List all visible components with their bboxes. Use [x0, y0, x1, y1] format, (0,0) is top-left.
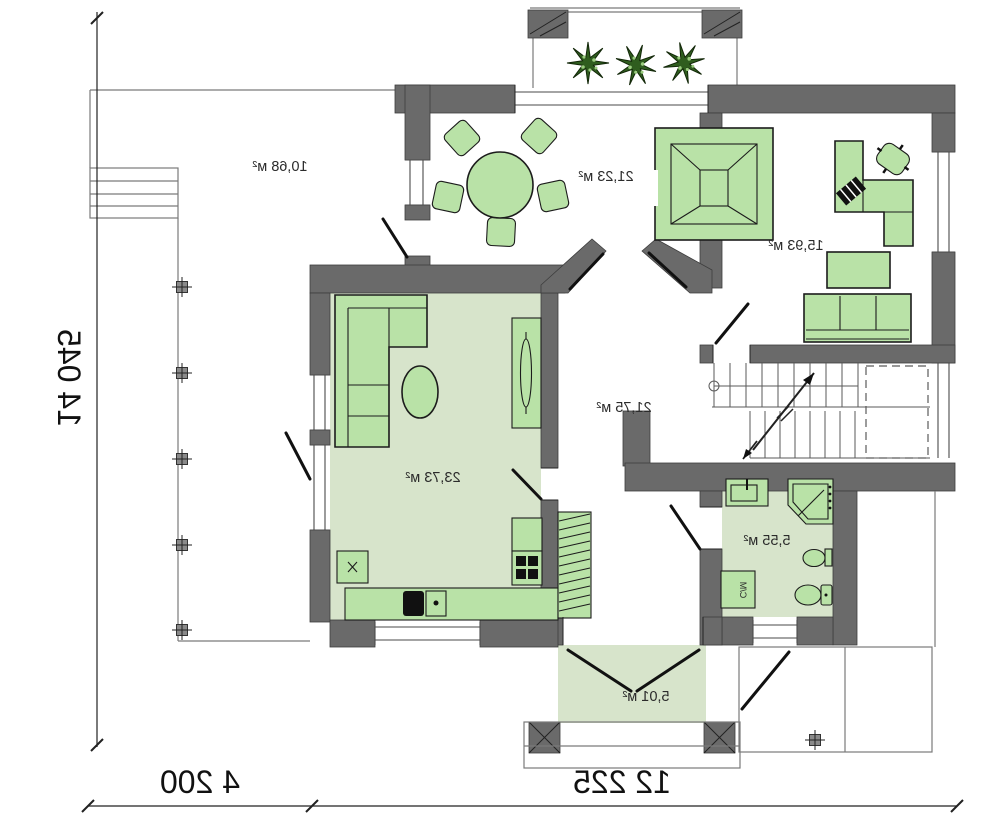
kitchen-counter-icon	[345, 588, 558, 620]
balcony-pier	[528, 10, 568, 38]
room-label-terrace: 10,68 м²	[252, 159, 307, 175]
sofa-icon	[804, 294, 911, 342]
column-icon	[805, 730, 825, 750]
window-stairs-east	[938, 363, 949, 458]
dining-set	[431, 116, 569, 246]
room-label-dining: 21,23 м²	[578, 169, 633, 185]
chair-icon	[536, 179, 569, 212]
terrace-steps	[90, 168, 178, 218]
chair-icon	[486, 217, 515, 246]
porch-column	[529, 722, 560, 753]
room-label-bathroom: 5,55 м²	[743, 533, 790, 549]
column-icon	[172, 277, 192, 297]
plant-icon	[659, 38, 709, 88]
toilet-icon	[795, 585, 832, 605]
stove-icon	[512, 551, 542, 585]
oval-coffee-table-icon	[402, 366, 438, 418]
coffee-table-icon	[827, 252, 890, 288]
plant-icon	[567, 42, 609, 84]
column-icon	[172, 535, 192, 555]
window-living-west-1	[310, 375, 330, 430]
kitchen-side-unit	[337, 551, 368, 583]
chair-icon	[442, 118, 482, 158]
room-label-living: 23,73 м²	[405, 470, 460, 486]
chair-icon	[519, 116, 559, 156]
column-icon	[172, 449, 192, 469]
column-icon	[172, 363, 192, 383]
dimension-line-left: 14 045	[51, 12, 103, 751]
room-label-entrance: 5,01 м²	[622, 689, 669, 705]
bidet-icon	[803, 549, 832, 567]
window-dining-west	[405, 160, 430, 205]
wardrobe-icon	[558, 512, 591, 618]
plant-icon	[610, 39, 663, 92]
window-living-west-2	[310, 445, 330, 530]
door-icon	[671, 506, 700, 549]
door-icon	[286, 433, 310, 479]
entrance-porch	[524, 722, 740, 768]
washing-machine-icon: С/М	[721, 571, 755, 608]
door-icon	[383, 219, 407, 257]
dimension-left-value: 14 045	[51, 329, 87, 427]
dimension-bottom-left-value: 4 200	[160, 764, 240, 800]
tv-cabinet-icon	[512, 318, 541, 428]
room-label-study: 15,93 м²	[768, 238, 823, 254]
washbasin-icon	[726, 479, 768, 506]
office-chair-icon	[868, 134, 919, 184]
washing-machine-label: С/М	[738, 582, 748, 599]
room-label-hall: 21,75 м²	[596, 400, 651, 416]
chair-icon	[431, 180, 464, 213]
door-icon	[716, 304, 748, 343]
floor-plan-page: С/М	[0, 0, 1000, 822]
balcony	[528, 8, 742, 91]
dining-table-icon	[467, 152, 533, 218]
kitchen-tall-unit	[512, 518, 542, 585]
fireplace-icon	[653, 128, 773, 240]
dimension-bottom-right-value: 12 225	[573, 764, 671, 800]
sink-icon	[403, 591, 424, 616]
dimension-line-bottom: 4 200 12 225	[82, 764, 963, 812]
window-bathroom-south	[753, 620, 797, 643]
door-icon	[742, 652, 789, 709]
porch-column	[704, 722, 735, 753]
balcony-opening-sill	[515, 92, 708, 105]
balcony-pier	[702, 10, 742, 38]
stair-landing-dashed	[866, 366, 928, 458]
window-study-east	[932, 152, 955, 252]
column-icon	[172, 620, 192, 640]
staircase	[709, 363, 930, 459]
window-kitchen-south	[375, 622, 480, 645]
floor-plan-canvas: С/М	[0, 0, 1000, 822]
